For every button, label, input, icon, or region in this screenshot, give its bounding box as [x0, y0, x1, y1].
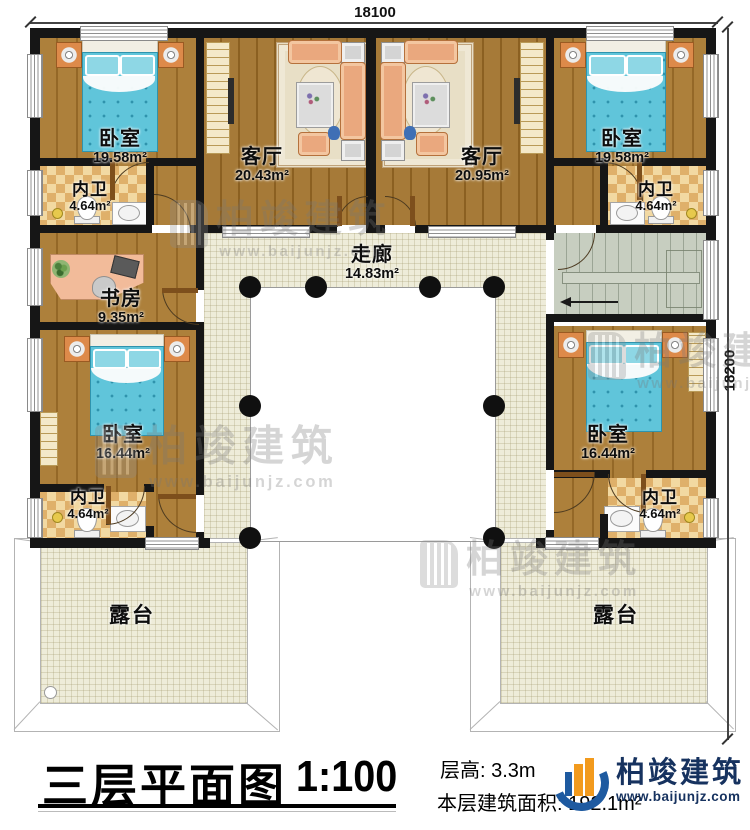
room-label-terrace-right: 露台 — [556, 604, 676, 628]
bed-pillow — [93, 349, 127, 369]
window — [27, 338, 43, 412]
side-table — [341, 42, 365, 63]
sofa — [340, 62, 366, 140]
company-logo-brand: 柏竣建筑 — [616, 758, 744, 788]
wall — [596, 225, 716, 233]
floor-height-label: 层高: — [440, 760, 486, 782]
table-flowers — [300, 88, 324, 108]
nightstand — [64, 336, 90, 362]
wall — [30, 225, 152, 233]
tv-cabinet — [520, 42, 544, 154]
column — [419, 276, 441, 298]
wall — [196, 322, 204, 495]
column — [483, 276, 505, 298]
sofa — [380, 62, 406, 140]
room-label-corridor: 走廊14.83m² — [312, 244, 432, 283]
room-label-bath-tr: 内卫4.64m² — [606, 180, 706, 214]
dimension-width: 18100 — [340, 4, 410, 21]
window — [80, 26, 168, 41]
room-label-study: 书房9.35m² — [61, 288, 181, 327]
stair-direction-line — [570, 301, 618, 303]
bed-pillow — [589, 345, 624, 365]
window — [545, 537, 599, 550]
wall — [144, 484, 154, 492]
table-flowers — [416, 88, 440, 108]
sofa — [288, 40, 342, 64]
nightstand — [158, 42, 184, 68]
courtyard-void — [250, 287, 496, 542]
room-label-bedroom-tr: 卧室19.58m² — [562, 128, 682, 167]
company-logo: 柏竣建筑 www.baijunjz.com — [552, 752, 744, 810]
door-leaf — [410, 196, 415, 226]
room-label-bath-tl: 内卫4.64m² — [40, 180, 140, 214]
column — [239, 276, 261, 298]
bed-pillow — [127, 349, 161, 369]
door-leaf — [158, 494, 196, 499]
terrace-drain — [44, 686, 57, 699]
nightstand — [560, 42, 586, 68]
watermark-logo-icon — [420, 540, 458, 588]
window — [586, 26, 674, 41]
title-underline-thin — [38, 811, 396, 812]
window — [222, 226, 310, 238]
window — [27, 248, 43, 306]
column — [305, 276, 327, 298]
nightstand — [668, 42, 694, 68]
wardrobe — [40, 412, 58, 466]
sofa — [404, 40, 458, 64]
room-label-living-right: 客厅20.95m² — [422, 146, 542, 185]
stair-walk-line — [666, 250, 702, 308]
bed-pillow — [624, 345, 659, 365]
room-label-living-left: 客厅20.43m² — [202, 146, 322, 185]
window — [27, 54, 43, 118]
bed-pillow — [85, 55, 120, 76]
bed-pillow — [626, 55, 663, 76]
room-label-bedroom-bl: 卧室16.44m² — [63, 424, 183, 463]
door-leaf — [554, 472, 594, 477]
room-label-bedroom-tl: 卧室19.58m² — [60, 128, 180, 167]
nightstand — [56, 42, 82, 68]
column — [239, 395, 261, 417]
column — [483, 395, 505, 417]
window — [428, 226, 516, 238]
title-underline — [38, 804, 396, 808]
tv-cabinet — [206, 42, 230, 154]
room-label-bath-bl: 内卫4.64m² — [38, 488, 138, 522]
floor-height-value: 3.3m — [491, 760, 535, 782]
wall — [546, 225, 554, 240]
company-logo-url: www.baijunjz.com — [616, 789, 744, 804]
nightstand — [662, 332, 688, 358]
wall — [546, 314, 714, 322]
wall — [546, 28, 554, 233]
person-figure — [404, 126, 416, 140]
column — [483, 527, 505, 549]
floor-plan: 卧室19.58m² 内卫4.64m² 客厅20.43m² 客厅20.95m² 卧… — [0, 0, 750, 830]
nightstand — [164, 336, 190, 362]
room-label-bath-br: 内卫4.64m² — [610, 488, 710, 522]
tv-icon — [514, 78, 520, 124]
window — [703, 338, 719, 412]
company-logo-icon — [552, 752, 610, 810]
person-figure — [328, 126, 340, 140]
dimension-line-top — [30, 22, 718, 24]
drawing-scale: 1:100 — [296, 752, 397, 802]
side-table — [341, 140, 365, 161]
room-label-bedroom-br: 卧室16.44m² — [548, 424, 668, 463]
window — [703, 240, 719, 320]
room-label-terrace-left: 露台 — [72, 604, 192, 628]
plant-icon — [52, 260, 70, 278]
wall — [646, 470, 714, 478]
floor-area-label: 本层建筑面积: — [437, 793, 563, 815]
bed-pillow — [120, 55, 155, 76]
dimension-height: 18200 — [722, 341, 739, 401]
tv-icon — [228, 78, 234, 124]
window — [145, 537, 199, 550]
column — [239, 527, 261, 549]
floor-height-text: 层高: 3.3m — [440, 754, 536, 783]
side-table — [381, 42, 405, 63]
bed-pillow — [589, 55, 626, 76]
nightstand — [558, 332, 584, 358]
door-leaf — [337, 196, 342, 226]
wall — [196, 233, 204, 290]
window — [703, 54, 719, 118]
wall — [196, 28, 204, 233]
wall — [600, 514, 608, 538]
side-table — [381, 140, 405, 161]
